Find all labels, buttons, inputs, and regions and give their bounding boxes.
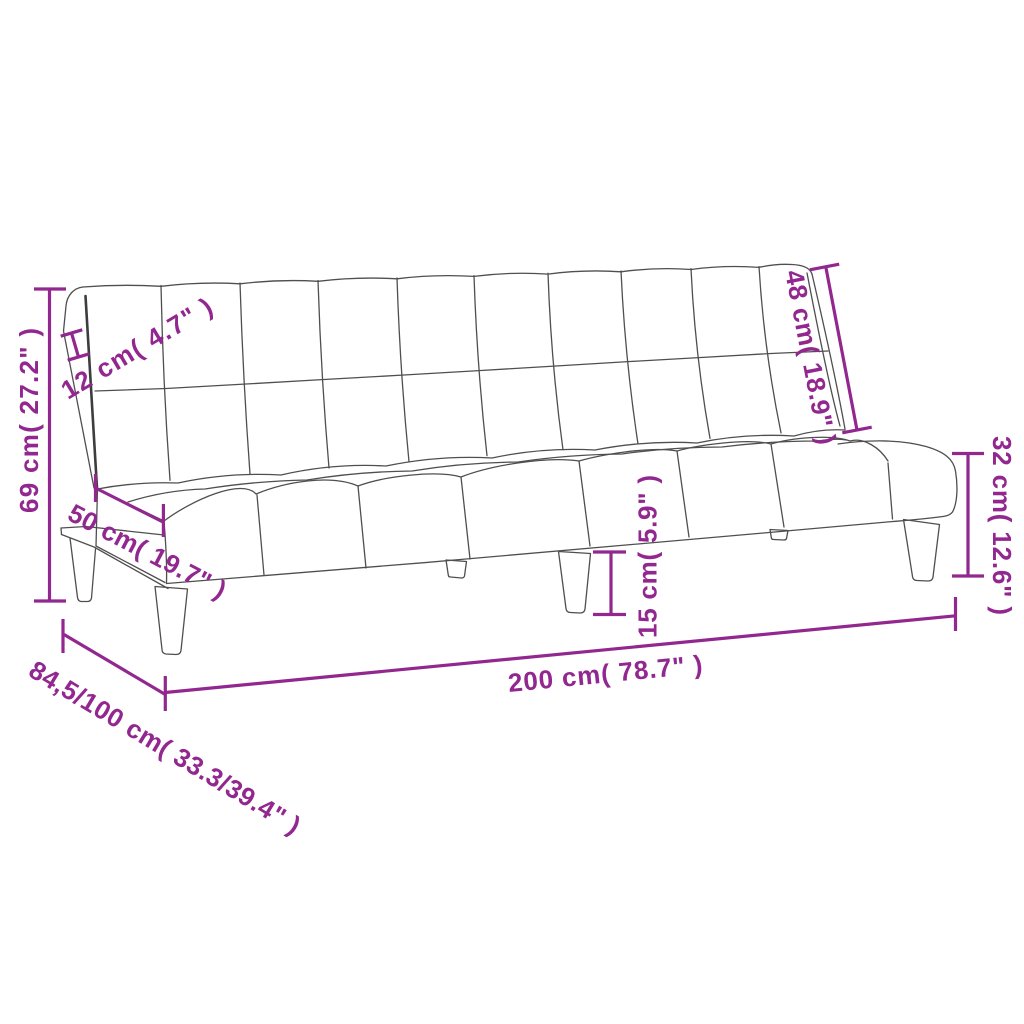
svg-text:69 cm( 27.2" ): 69 cm( 27.2" ) xyxy=(14,327,44,513)
svg-text:15 cm( 5.9" ): 15 cm( 5.9" ) xyxy=(633,474,663,638)
svg-text:32 cm( 12.6" ): 32 cm( 12.6" ) xyxy=(987,436,1017,616)
